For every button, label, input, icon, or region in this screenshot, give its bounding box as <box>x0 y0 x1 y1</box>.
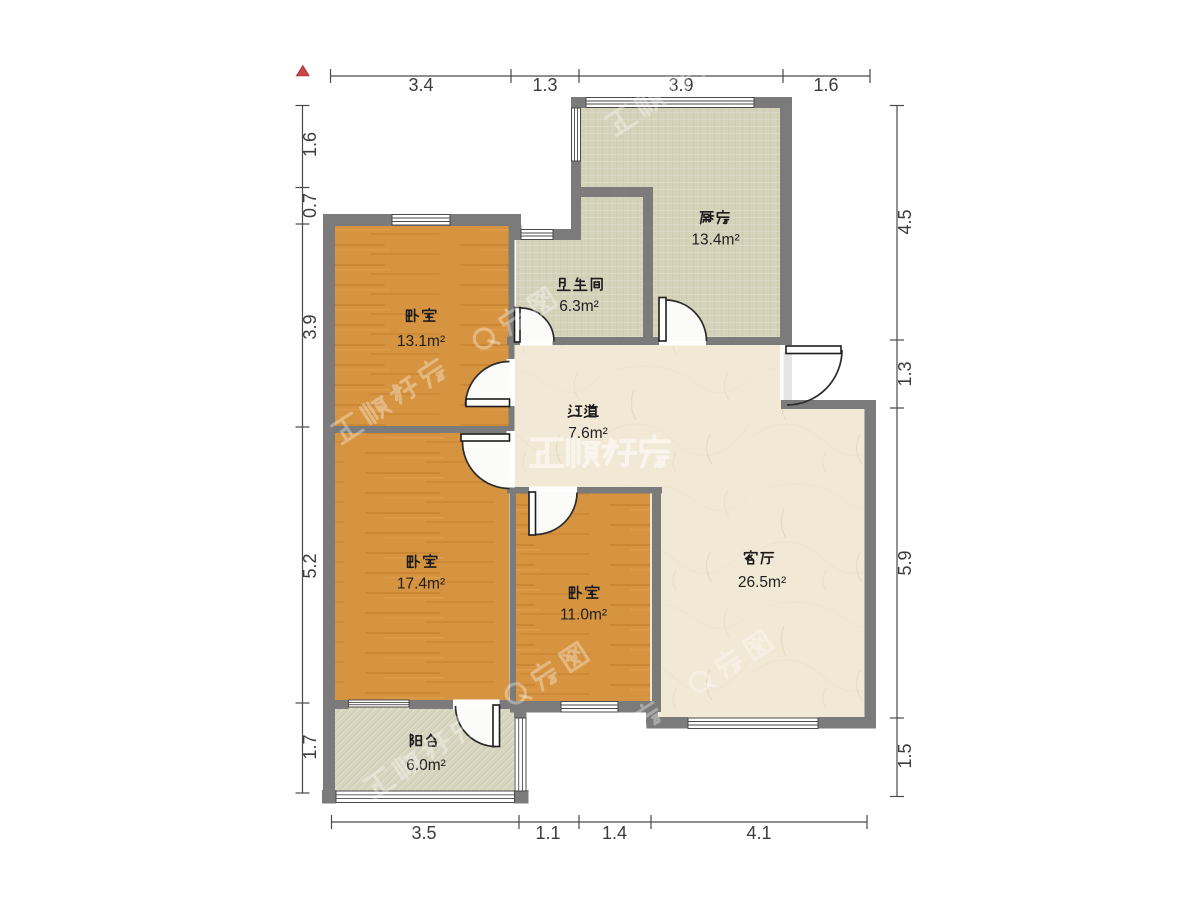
svg-text:1.6: 1.6 <box>813 75 838 95</box>
svg-text:3.9: 3.9 <box>300 314 320 339</box>
svg-text:5.9: 5.9 <box>895 550 915 575</box>
svg-text:4.1: 4.1 <box>746 823 771 843</box>
svg-text:3.5: 3.5 <box>411 823 436 843</box>
svg-text:17.4m²: 17.4m² <box>397 576 445 593</box>
svg-text:3.4: 3.4 <box>408 75 433 95</box>
svg-text:1.1: 1.1 <box>535 823 560 843</box>
svg-text:5.2: 5.2 <box>300 553 320 578</box>
svg-text:13.1m²: 13.1m² <box>397 333 445 350</box>
svg-text:1.3: 1.3 <box>532 75 557 95</box>
svg-text:1.4: 1.4 <box>602 823 627 843</box>
svg-text:11.0m²: 11.0m² <box>560 607 607 624</box>
svg-text:6.3m²: 6.3m² <box>559 298 599 315</box>
svg-text:1.3: 1.3 <box>895 361 915 386</box>
svg-text:13.4m²: 13.4m² <box>691 232 739 249</box>
svg-text:1.6: 1.6 <box>300 132 320 157</box>
svg-text:0.7: 0.7 <box>300 193 320 218</box>
svg-text:1.5: 1.5 <box>895 743 915 768</box>
svg-text:1.7: 1.7 <box>300 734 320 759</box>
svg-text:4.5: 4.5 <box>895 209 915 234</box>
svg-text:26.5m²: 26.5m² <box>738 574 786 591</box>
